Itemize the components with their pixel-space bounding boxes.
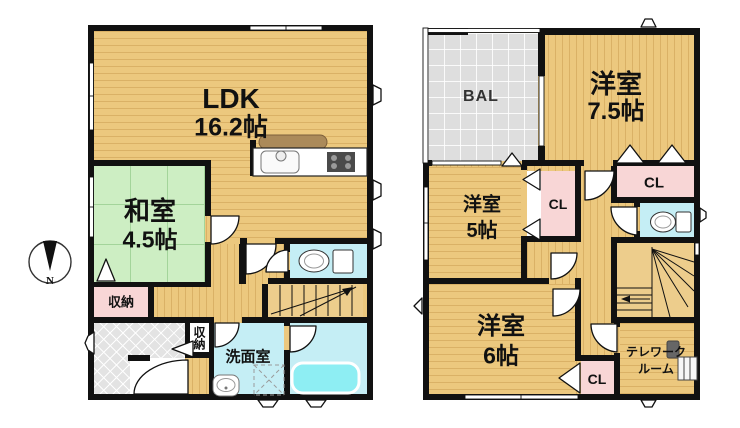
closet-5-door-strip (527, 171, 541, 236)
ldk-name-label: LDK (202, 85, 260, 113)
bedroom6-side-window-marker (414, 298, 422, 314)
staircase1-floor (268, 284, 363, 317)
bedroom5-size-label: 5帖 (466, 221, 497, 241)
toilet2-room (640, 203, 694, 237)
toilet1-room (290, 244, 367, 278)
ldk-dining-area (211, 160, 367, 244)
washroom-vent-marker (258, 400, 278, 407)
ldk-side-window-marker (373, 85, 381, 105)
entrance-doorway-area (130, 358, 185, 394)
closet1-label: 収納 (108, 296, 134, 309)
bedroom75-size-label: 7.5帖 (587, 100, 644, 124)
kitchen-side-window-marker (373, 180, 381, 200)
stairs2-window (695, 243, 699, 255)
bedroom75-name-label: 洋室 (590, 71, 642, 97)
toilet2-window-marker (700, 208, 706, 222)
closet-6-label: CL (588, 372, 607, 386)
bedroom5-name-label: 洋室 (463, 196, 501, 215)
front-door-marker (85, 332, 94, 354)
entry-closet-label: 収納 (193, 326, 205, 350)
bathroom-room (290, 323, 367, 394)
japanese-room-size-label: 4.5帖 (123, 229, 178, 252)
balcony-label: BAL (463, 89, 499, 105)
bathroom-vent-marker (306, 400, 326, 407)
floorplan-canvas: N LDK 16.2帖 和室 4.5帖 収納 収納 洗面室 BAL 洋室 7.5… (0, 0, 740, 428)
telework-room-label-line2: ルーム (638, 363, 674, 375)
compass-circle (29, 241, 71, 283)
compass-needle-icon (43, 241, 57, 271)
roof-vent-marker-top (641, 19, 656, 27)
bedroom6-name-label: 洋室 (477, 315, 525, 339)
compass-north-label: N (46, 275, 54, 287)
staircase2-floor (617, 243, 694, 317)
toilet1-window-marker (373, 229, 381, 249)
vent-marker-bottom (641, 400, 656, 407)
washroom-label: 洗面室 (225, 350, 270, 365)
closet-5-label: CL (549, 197, 568, 211)
ldk-size-label: 16.2帖 (194, 116, 268, 141)
bedroom6-size-label: 6帖 (483, 345, 519, 368)
compass: N (29, 241, 71, 287)
closet-75-label: CL (644, 176, 664, 191)
japanese-room-name-label: 和室 (124, 198, 176, 224)
telework-room-label-line1: テレワーク (626, 346, 686, 358)
